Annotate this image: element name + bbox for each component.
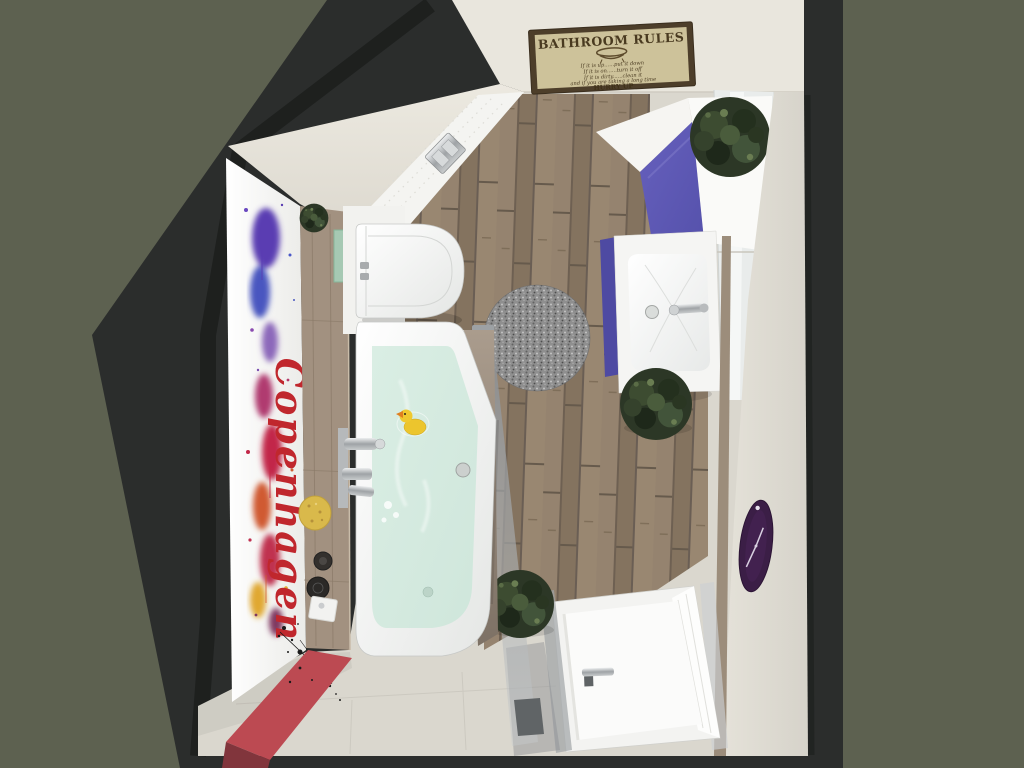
soap-dispenser[interactable] [308, 596, 337, 622]
small-plant[interactable] [300, 204, 329, 233]
vanity-plant[interactable] [620, 368, 692, 440]
toilet[interactable] [356, 224, 464, 318]
bathroom-3d-render[interactable]: Copenhagen [0, 0, 1024, 768]
bathroom-rules-sign[interactable]: BATHROOM RULES If it is up......put it d… [528, 22, 695, 95]
whirlpool-jet [456, 463, 470, 477]
basin-drain [646, 306, 659, 319]
tub-drain [423, 587, 433, 597]
bathtub[interactable] [338, 322, 496, 656]
scene-canvas[interactable]: Copenhagen [0, 0, 1024, 768]
shower-tray[interactable] [552, 586, 720, 752]
round-rug[interactable] [484, 285, 590, 391]
cabinet-plant[interactable] [690, 97, 770, 177]
sponge[interactable] [299, 496, 331, 530]
toilet-hinge [360, 262, 369, 269]
basin [628, 254, 710, 371]
